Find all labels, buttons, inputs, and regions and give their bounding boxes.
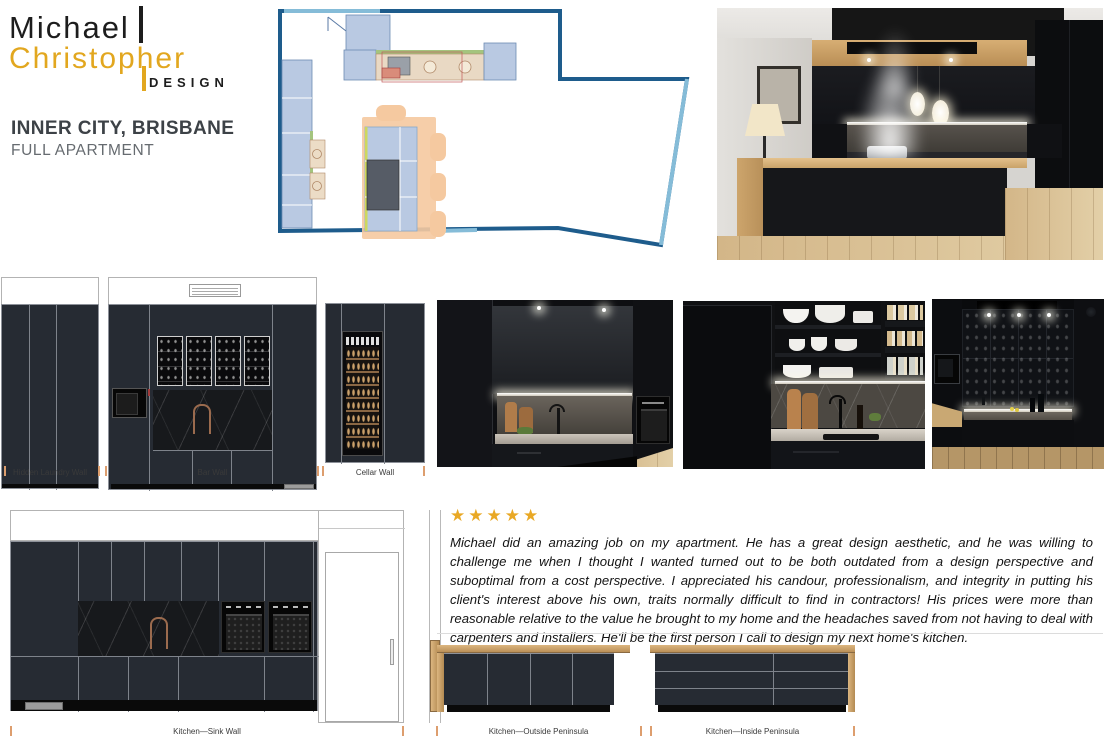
client-review: ★★★★★ Michael did an amazing job on my a… <box>450 506 1095 636</box>
downlight <box>602 308 606 312</box>
elevation-kitchen-outside-peninsula <box>437 645 632 712</box>
photo-pantry-shelves <box>683 301 925 469</box>
benchtop <box>964 412 1072 420</box>
elevation-cellar-wall <box>325 303 425 463</box>
glass-display-cabinet <box>186 336 212 386</box>
bulkhead <box>108 277 317 305</box>
open-shelves-dishes <box>775 301 881 381</box>
review-text: Michael did an amazing job on my apartme… <box>450 533 1093 647</box>
round-vent <box>1086 307 1096 317</box>
door-opening <box>318 510 404 723</box>
bulkhead <box>1 277 99 305</box>
base-drawers <box>771 441 925 469</box>
vent-grille <box>189 284 241 297</box>
oven-door <box>641 409 667 441</box>
brand-word-christopher: Christopher <box>9 42 186 76</box>
pantry-jars <box>887 357 923 375</box>
drawing-guide-line <box>437 633 1103 634</box>
herb-plant <box>869 413 881 421</box>
kickboard <box>111 484 316 489</box>
door-handle <box>390 639 394 665</box>
pantry-jars <box>887 331 923 346</box>
downlight <box>949 58 953 62</box>
elevation-kitchen-inside-peninsula <box>650 645 855 712</box>
white-bowl <box>783 365 811 378</box>
photo-sink-wall <box>437 300 673 467</box>
cutting-board <box>505 402 517 432</box>
photo-bar-nook <box>932 299 1104 469</box>
peninsula-drawers <box>655 653 848 705</box>
faucet <box>150 617 168 649</box>
timber-floor <box>1005 188 1103 260</box>
brand-word-michael: Michael <box>9 10 130 46</box>
kick-vent <box>284 484 314 489</box>
faucet <box>557 408 560 434</box>
elevation-label: Kitchen—Inside Peninsula <box>650 727 855 736</box>
microwave <box>934 354 960 384</box>
kick-vent <box>25 702 63 710</box>
timber-waterfall-leg <box>437 653 444 712</box>
tall-cabinet <box>437 300 493 467</box>
white-platter <box>819 367 853 378</box>
logo-descender-bar <box>142 66 146 91</box>
hood-strip <box>977 301 1057 309</box>
microwave-window <box>938 359 953 377</box>
cabinet-left <box>932 299 962 469</box>
door <box>325 552 399 722</box>
sink <box>823 434 879 440</box>
brand-word-design: DESIGN <box>149 75 229 90</box>
pantry-jars <box>887 305 923 320</box>
cellar-cabinetry <box>325 303 425 463</box>
plan-island <box>362 105 446 239</box>
oven-door <box>226 614 262 650</box>
elevation-hidden-laundry-wall <box>1 277 99 473</box>
drawer-handle <box>793 451 839 453</box>
cabinet-side <box>1027 124 1062 158</box>
lemons <box>1015 408 1019 412</box>
dimension-tick <box>640 726 642 736</box>
elevation-label: Cellar Wall <box>325 468 425 477</box>
oven-controls <box>226 606 262 608</box>
peninsula-doors <box>444 653 614 705</box>
benchtop <box>771 429 925 441</box>
plan-walls <box>280 11 687 245</box>
timber-benchtop <box>650 645 855 653</box>
dimension-tick <box>317 466 319 476</box>
microwave <box>112 388 147 418</box>
tap <box>982 397 985 405</box>
kickboard <box>658 705 846 712</box>
oven-controls <box>273 606 309 608</box>
marble-splashback <box>78 601 219 656</box>
kickboard <box>11 700 317 711</box>
island-benchtop <box>737 158 1027 168</box>
wine-fridge <box>342 331 383 456</box>
glass-display-cabinet <box>157 336 183 386</box>
lemons <box>1010 407 1014 411</box>
dimension-tick <box>105 466 107 476</box>
microwave-window <box>116 393 138 415</box>
elevation-bar-wall <box>108 277 317 473</box>
kickboard <box>2 484 98 488</box>
brand-logo: Michael Christopher DESIGN <box>9 4 249 99</box>
steam <box>875 28 915 98</box>
benchtop <box>495 434 635 444</box>
white-cup <box>811 337 827 351</box>
white-dish <box>853 311 873 323</box>
logo-ascender-bar <box>139 6 143 43</box>
sink-wall-cabinetry <box>10 541 318 711</box>
faucet <box>829 395 846 404</box>
white-cup <box>789 339 805 351</box>
cabinet-light <box>1047 313 1051 317</box>
bar-cabinetry <box>108 304 317 490</box>
cabinet-light <box>1017 313 1021 317</box>
oven <box>221 601 265 653</box>
faucet <box>839 399 842 429</box>
pendant-cord <box>939 66 940 100</box>
glass-display-cabinet <box>962 309 1074 407</box>
white-bowl <box>783 309 809 323</box>
elevation-label: Kitchen—Outside Peninsula <box>437 727 640 736</box>
project-title: INNER CITY, BRISBANE <box>11 118 234 140</box>
island-base <box>763 168 1007 244</box>
oven <box>268 601 312 653</box>
timber-floor <box>932 447 1104 469</box>
faucet <box>193 404 211 434</box>
bottle <box>1030 398 1035 412</box>
glass-display-cabinet <box>244 336 270 386</box>
oven <box>636 396 670 444</box>
downlight <box>537 306 541 310</box>
cabinet-light <box>987 313 991 317</box>
oven-display <box>642 402 664 404</box>
upper-cabinets <box>492 306 642 394</box>
star-rating: ★★★★★ <box>450 506 1095 526</box>
timber-benchtop <box>437 645 630 653</box>
dimension-tick <box>322 466 324 476</box>
wine-fridge-bottles <box>346 347 379 449</box>
wine-fridge-caps <box>346 337 379 345</box>
plan-cooktop <box>367 160 399 210</box>
cutting-board <box>802 393 818 429</box>
marble-splashback <box>153 390 272 450</box>
project-subtitle: FULL APARTMENT <box>11 142 154 160</box>
tall-cabinet <box>683 305 772 469</box>
cutting-board <box>787 389 801 429</box>
bottle <box>857 405 863 429</box>
elevation-kitchen-sink-wall <box>10 510 404 723</box>
open-shelves-jars <box>885 301 925 381</box>
white-bowl <box>835 339 857 351</box>
design-board: Michael Christopher DESIGN INNER CITY, B… <box>0 0 1104 740</box>
elevation-label: Kitchen—Sink Wall <box>10 727 404 736</box>
dimension-mark <box>148 389 150 396</box>
cabinet-side <box>812 124 847 158</box>
elevation-label: Hidden Laundry Wall <box>1 468 99 477</box>
timber-waterfall-leg <box>848 653 855 712</box>
white-jug <box>815 305 845 323</box>
kickboard <box>447 705 610 712</box>
table-lamp-stem <box>763 136 766 158</box>
cabinet-right <box>1074 299 1104 469</box>
bottle <box>1038 394 1044 412</box>
elevation-label: Bar Wall <box>108 468 317 477</box>
apartment-floor-plan <box>270 5 690 250</box>
photo-main-kitchen <box>717 8 1103 260</box>
glass-display-cabinet <box>215 336 241 386</box>
oven-door <box>273 614 309 650</box>
laundry-doors <box>1 304 99 489</box>
drawer-handle <box>517 452 541 454</box>
